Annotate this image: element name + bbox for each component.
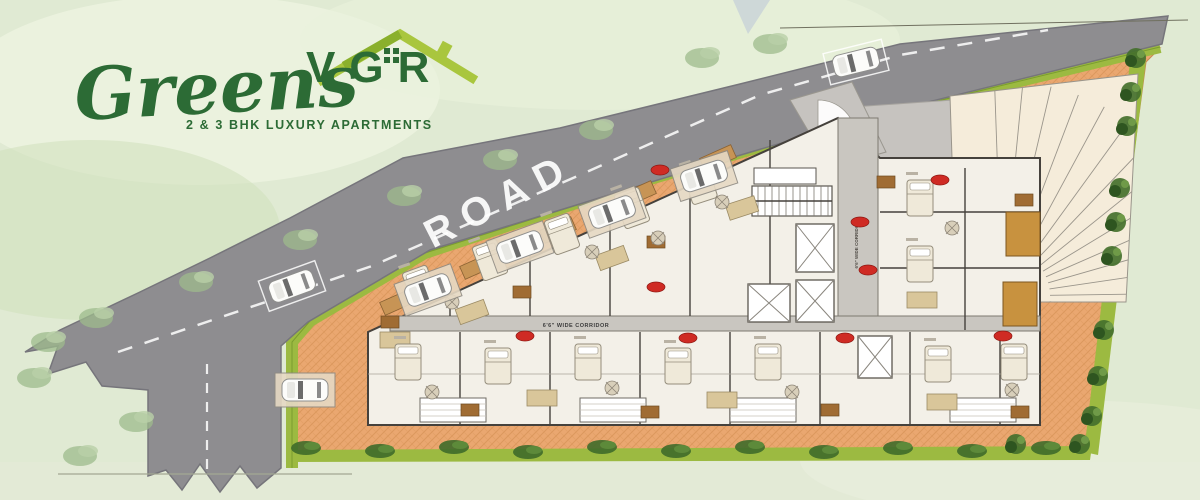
wardrobe-counter bbox=[513, 286, 531, 298]
hedge-bush bbox=[365, 444, 395, 458]
logo-tagline: 2 & 3 BHK LUXURY APARTMENTS bbox=[186, 118, 433, 132]
car-hood bbox=[287, 382, 295, 398]
bush-foliage bbox=[896, 442, 912, 450]
table-fan bbox=[1005, 383, 1019, 397]
table-fan bbox=[651, 231, 665, 245]
site-plan-poster: ROAD 6'6" WIDE CORRIDOR 6'6" WIDE CORRID… bbox=[0, 0, 1200, 500]
bed-pillow bbox=[398, 347, 418, 354]
tree-foliage bbox=[1116, 123, 1128, 135]
hedge-bush bbox=[587, 440, 617, 454]
tree-foliage bbox=[1137, 50, 1145, 58]
room-label-smudge bbox=[924, 338, 936, 341]
unit-number-badge bbox=[859, 265, 877, 275]
tree-foliage bbox=[1069, 441, 1081, 453]
tree-foliage bbox=[32, 367, 52, 379]
bed-pillow bbox=[668, 351, 688, 358]
balcony bbox=[580, 398, 646, 422]
bush-foliage bbox=[600, 441, 616, 449]
wardrobe-counter bbox=[461, 404, 479, 416]
tree-foliage bbox=[1132, 84, 1140, 92]
tree-foliage bbox=[1128, 118, 1136, 126]
gold-balcony bbox=[1006, 212, 1040, 256]
bed-pillow bbox=[758, 347, 778, 354]
tree-foliage bbox=[402, 185, 422, 197]
wardrobe-counter bbox=[641, 406, 659, 418]
wardrobe-counter bbox=[1015, 194, 1033, 206]
bed-pillow bbox=[578, 347, 598, 354]
entrance-lobby bbox=[754, 168, 816, 184]
tree-foliage bbox=[1093, 327, 1105, 339]
tree-foliage bbox=[1121, 180, 1129, 188]
table-fan bbox=[945, 221, 959, 235]
lift-shaft bbox=[796, 280, 834, 322]
bush-foliage bbox=[822, 446, 838, 454]
wardrobe-counter bbox=[381, 316, 399, 328]
hedge-bush bbox=[291, 441, 321, 455]
corridor-label: 6'6" WIDE CORRIDOR bbox=[543, 323, 609, 329]
lift-shaft bbox=[796, 224, 834, 272]
tree-foliage bbox=[194, 271, 214, 283]
bush-foliage bbox=[1044, 442, 1060, 450]
tree-foliage bbox=[1105, 322, 1113, 330]
hedge-bush bbox=[883, 441, 913, 455]
bush-foliage bbox=[304, 442, 320, 450]
unit-number-badge bbox=[851, 217, 869, 227]
unit-number-badge bbox=[931, 175, 949, 185]
bed-pillow bbox=[488, 351, 508, 358]
tree-foliage bbox=[46, 331, 66, 343]
kitchen-counter bbox=[527, 390, 557, 406]
bed-pillow bbox=[910, 249, 930, 256]
tree-foliage bbox=[1105, 219, 1117, 231]
hedge-bush bbox=[1031, 441, 1061, 455]
room-label-smudge bbox=[906, 238, 918, 241]
tree-foliage bbox=[1113, 248, 1121, 256]
tree-foliage bbox=[78, 445, 98, 457]
tree-foliage bbox=[1017, 436, 1025, 444]
unit-number-badge bbox=[994, 331, 1012, 341]
unit-number-badge bbox=[836, 333, 854, 343]
tree-foliage bbox=[134, 411, 154, 423]
tree-foliage bbox=[1081, 436, 1089, 444]
car bbox=[282, 379, 328, 401]
tree-foliage bbox=[594, 119, 614, 131]
bush-foliage bbox=[378, 445, 394, 453]
table-fan bbox=[785, 385, 799, 399]
corridor-label-vertical: 6'6" WIDE CORRIDOR bbox=[854, 221, 859, 269]
bed-pillow bbox=[910, 183, 930, 190]
wardrobe-counter bbox=[821, 404, 839, 416]
room-label-smudge bbox=[906, 172, 918, 175]
tree-foliage bbox=[1005, 441, 1017, 453]
staircase bbox=[752, 186, 832, 216]
logo: VGR Greens 2 & 3 BHK LUXURY APARTMENTS bbox=[72, 34, 472, 137]
tree-foliage bbox=[1125, 55, 1137, 67]
tree-foliage bbox=[1093, 408, 1101, 416]
bush-foliage bbox=[674, 445, 690, 453]
table-fan bbox=[605, 381, 619, 395]
wardrobe-counter bbox=[1011, 406, 1029, 418]
room-label-smudge bbox=[664, 340, 676, 343]
kitchen-counter bbox=[907, 292, 937, 308]
kitchen-counter bbox=[707, 392, 737, 408]
tree-foliage bbox=[1087, 373, 1099, 385]
main-corridor bbox=[390, 316, 1040, 331]
room-label-smudge bbox=[394, 336, 406, 339]
gold-balcony bbox=[1003, 282, 1037, 326]
car-rear-window bbox=[317, 382, 321, 398]
tree-foliage bbox=[700, 47, 720, 59]
table-fan bbox=[585, 245, 599, 259]
bush-foliage bbox=[748, 441, 764, 449]
tree-foliage bbox=[498, 149, 518, 161]
tree-foliage bbox=[1117, 214, 1125, 222]
bush-foliage bbox=[452, 441, 468, 449]
hedge-bush bbox=[439, 440, 469, 454]
lift-shaft bbox=[858, 336, 892, 378]
hedge-bush bbox=[513, 445, 543, 459]
tree-foliage bbox=[94, 307, 114, 319]
bush-foliage bbox=[970, 445, 986, 453]
bed-pillow bbox=[1004, 347, 1024, 354]
tree-foliage bbox=[1101, 253, 1113, 265]
kitchen-counter bbox=[927, 394, 957, 410]
wardrobe-counter bbox=[877, 176, 895, 188]
unit-number-badge bbox=[516, 331, 534, 341]
hedge-bush bbox=[735, 440, 765, 454]
tree-foliage bbox=[298, 229, 318, 241]
hedge-bush bbox=[661, 444, 691, 458]
room-label-smudge bbox=[754, 336, 766, 339]
tree-foliage bbox=[1120, 89, 1132, 101]
unit-number-badge bbox=[679, 333, 697, 343]
table-fan bbox=[425, 385, 439, 399]
balcony bbox=[950, 398, 1016, 422]
tree-foliage bbox=[1081, 413, 1093, 425]
room-label-smudge bbox=[574, 336, 586, 339]
balcony bbox=[730, 398, 796, 422]
site-plan-canvas: ROAD 6'6" WIDE CORRIDOR 6'6" WIDE CORRID… bbox=[0, 0, 1200, 500]
tree-foliage bbox=[768, 33, 788, 45]
table-fan bbox=[715, 195, 729, 209]
tree-foliage bbox=[1109, 185, 1121, 197]
car-windshield bbox=[298, 381, 303, 399]
room-label-smudge bbox=[484, 340, 496, 343]
lift-shaft bbox=[748, 284, 790, 322]
hedge-bush bbox=[957, 444, 987, 458]
unit-number-badge bbox=[651, 165, 669, 175]
unit-number-badge bbox=[647, 282, 665, 292]
tree-foliage bbox=[1099, 368, 1107, 376]
bed-pillow bbox=[928, 349, 948, 356]
hedge-bush bbox=[809, 445, 839, 459]
bush-foliage bbox=[526, 446, 542, 454]
